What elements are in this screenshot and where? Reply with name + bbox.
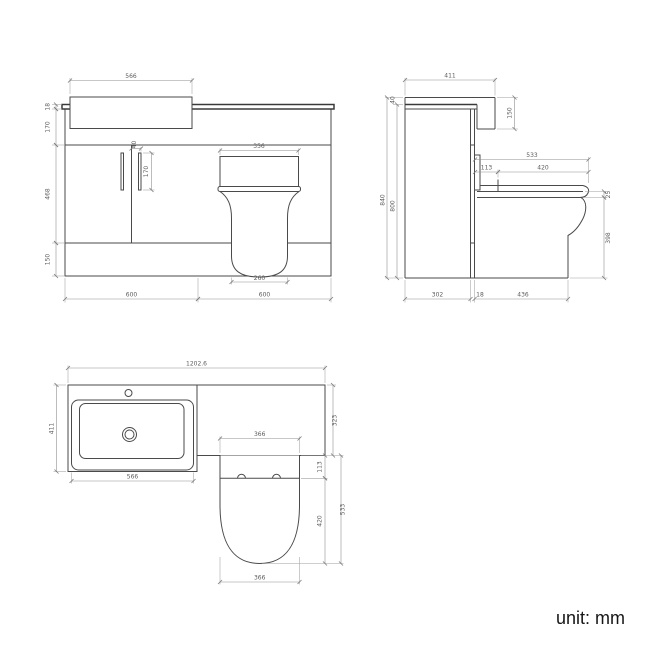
technical-drawing-canvas: 566 18 170 468 150 40 170 356 260 (0, 0, 650, 650)
plan-basin-outer (72, 400, 194, 470)
front-toilet-cistern (220, 157, 299, 187)
dim-front-pan-base: 260 (254, 275, 266, 282)
dim-front-handle-offset: 40 (131, 141, 138, 149)
dim-side-panel: 18 (476, 292, 484, 299)
dim-front-cistern-width: 356 (253, 143, 265, 150)
dim-front-basin-width: 566 (125, 73, 137, 80)
dim-side-total-height: 840 (380, 194, 387, 206)
front-basin (70, 97, 192, 129)
dim-side-seat-total: 533 (526, 152, 538, 159)
dim-plan-vanity-depth: 411 (49, 423, 56, 435)
front-right-handle (139, 153, 142, 190)
dim-plan-total-width: 1202.6 (186, 361, 207, 368)
dim-side-pan-height: 398 (605, 232, 612, 244)
dim-side-cabinet-height: 800 (390, 200, 397, 212)
dim-plan-seat-length: 420 (317, 515, 324, 527)
front-elevation-view: 566 18 170 468 150 40 170 356 260 (45, 73, 335, 303)
dim-side-basin-above: 40 (390, 96, 397, 104)
dim-side-basin-height: 150 (507, 107, 514, 119)
dim-side-seat-back: 113 (481, 165, 493, 172)
plan-tap-hole (125, 390, 132, 397)
side-elevation-view: 411 840 800 40 150 533 113 420 25 398 (380, 73, 613, 303)
unit-label: unit: mm (556, 608, 625, 628)
dim-side-depth: 411 (444, 73, 456, 80)
dim-plan-seat-back: 113 (317, 461, 324, 473)
dim-front-apron: 170 (45, 121, 52, 133)
dim-plan-seat-total: 533 (340, 504, 347, 516)
front-left-handle (121, 153, 124, 190)
plan-toilet-outline (220, 456, 300, 564)
dim-side-seat-length: 420 (537, 165, 549, 172)
front-toilet-pan (220, 192, 299, 278)
dim-front-handle-length: 170 (143, 166, 150, 178)
dim-front-door: 468 (45, 188, 52, 200)
dim-front-wc-width: 600 (259, 292, 271, 299)
dim-plan-toilet-width: 366 (254, 431, 266, 438)
side-pan-front (568, 198, 586, 279)
dim-plan-basin-width: 566 (127, 474, 139, 481)
dim-plan-pan-width: 366 (254, 575, 266, 582)
front-toilet-seat (218, 187, 301, 192)
dim-front-worktop: 18 (45, 103, 52, 111)
plan-view: 1202.6 411 566 323 113 420 533 366 366 (49, 361, 347, 585)
side-cistern-lid (475, 155, 481, 190)
dim-plan-wc-depth: 323 (332, 415, 339, 427)
dim-side-pan-projection: 436 (517, 292, 529, 299)
dim-front-plinth: 150 (45, 254, 52, 266)
dim-front-vanity-width: 600 (126, 292, 138, 299)
dim-side-seat-thickness: 25 (605, 191, 612, 199)
dim-side-cabinet-depth: 302 (432, 292, 444, 299)
